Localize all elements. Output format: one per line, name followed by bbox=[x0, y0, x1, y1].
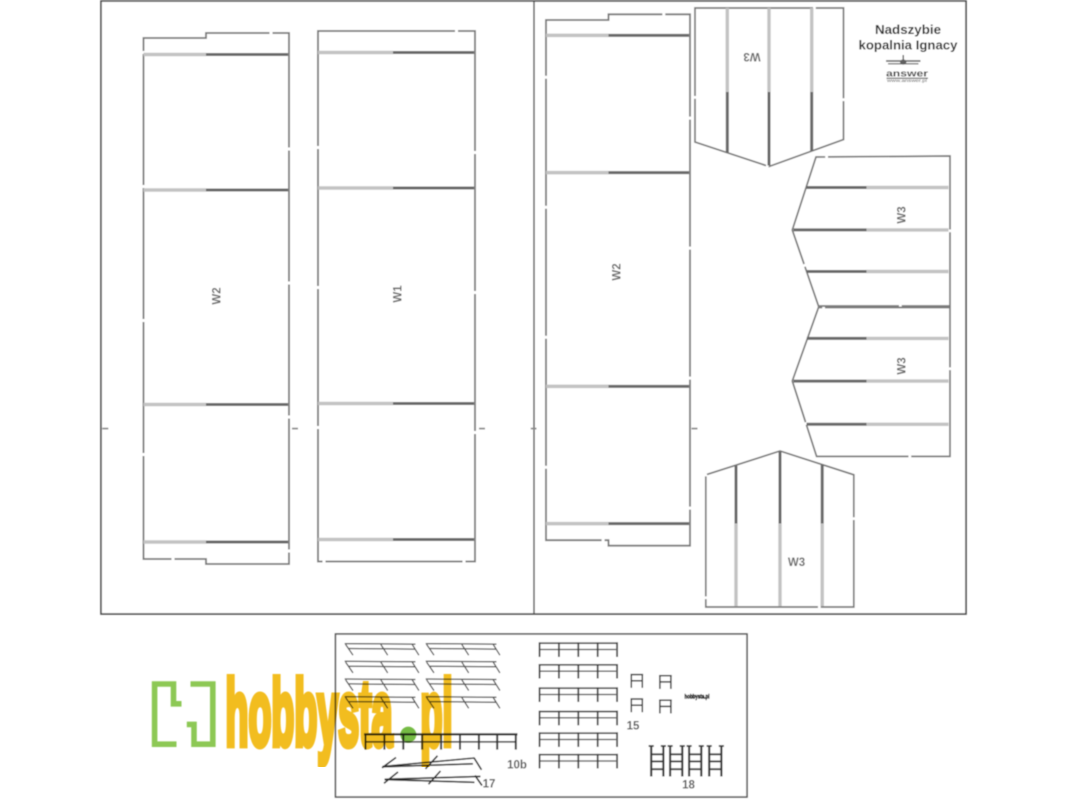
svg-text:18: 18 bbox=[682, 780, 695, 792]
svg-text:10b: 10b bbox=[507, 760, 527, 772]
svg-text:15: 15 bbox=[627, 721, 640, 733]
svg-text:W3: W3 bbox=[743, 50, 760, 62]
svg-text:W2: W2 bbox=[612, 263, 624, 280]
svg-text:hobbysta.pl: hobbysta.pl bbox=[685, 694, 710, 701]
svg-text:Nadszybie: Nadszybie bbox=[875, 22, 941, 37]
svg-text:hobbysta: hobbysta bbox=[226, 661, 394, 765]
svg-text:W3: W3 bbox=[897, 357, 909, 374]
svg-text:kopalnia Ignacy: kopalnia Ignacy bbox=[859, 38, 959, 53]
svg-text:W3: W3 bbox=[788, 557, 805, 569]
svg-text:pl: pl bbox=[421, 661, 453, 765]
svg-text:W3: W3 bbox=[897, 206, 909, 223]
svg-text:17: 17 bbox=[483, 779, 496, 791]
svg-text:www.answer.pl: www.answer.pl bbox=[887, 78, 927, 83]
svg-text:W1: W1 bbox=[393, 285, 405, 303]
svg-text:W2: W2 bbox=[212, 287, 224, 304]
